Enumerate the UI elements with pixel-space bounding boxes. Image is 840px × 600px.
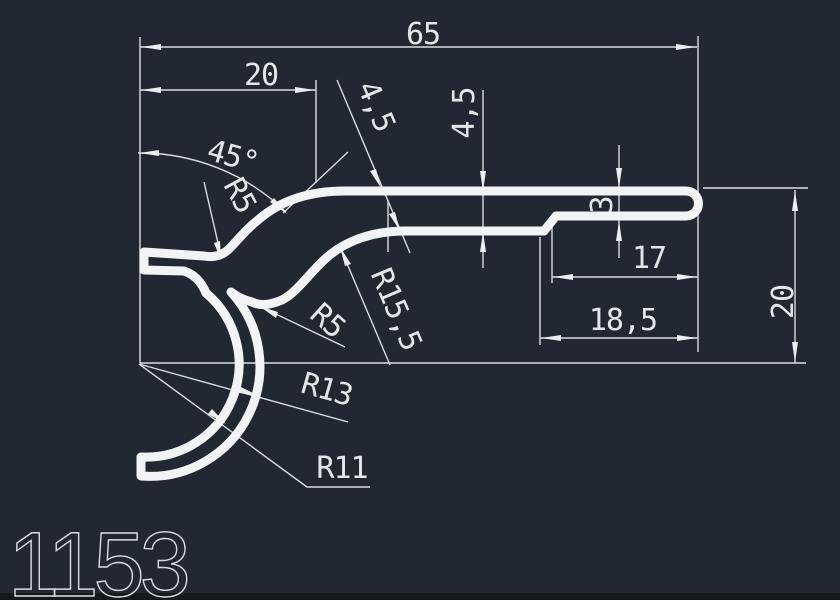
gap-3-label[interactable]: 3 [585, 196, 620, 213]
dim-17-label[interactable]: 17 [632, 241, 666, 276]
drawing-background [0, 0, 840, 600]
dim-20-top-label[interactable]: 20 [244, 58, 278, 93]
cad-viewport[interactable]: 65 20 45° R5 4,5 4,5 3 R15,5 R5 17 18,5 … [0, 0, 840, 600]
radius-r11-label[interactable]: R11 [316, 451, 367, 486]
dim-20-right-label[interactable]: 20 [766, 285, 801, 319]
part-number: 1153 [8, 514, 188, 600]
cad-drawing[interactable]: 65 20 45° R5 4,5 4,5 3 R15,5 R5 17 18,5 … [0, 0, 840, 600]
thickness-4-5-vertical-label[interactable]: 4,5 [447, 87, 482, 138]
dim-65-label[interactable]: 65 [406, 17, 440, 52]
dim-18-5-label[interactable]: 18,5 [589, 303, 657, 338]
